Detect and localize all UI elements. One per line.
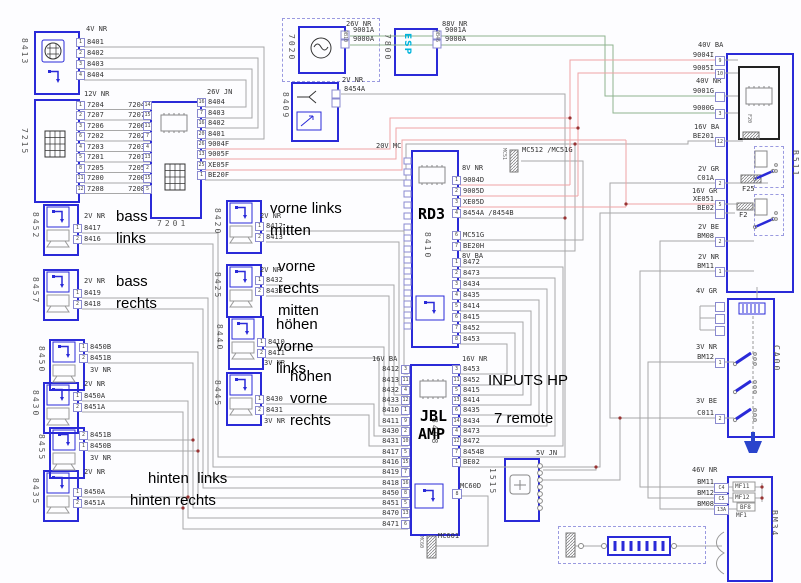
text-hinten-rechts: hinten rechts	[130, 492, 216, 509]
wire-c01a: C01A	[668, 174, 714, 182]
ref-8455: 8455	[37, 434, 46, 461]
hdr-8457: 2V NR	[84, 277, 105, 285]
ref-8409: 8409	[281, 92, 290, 119]
pin-bm34-c4: C4	[714, 483, 729, 493]
text-bass-rechts-2: rechts	[116, 295, 157, 312]
wire-9001g: 9001G	[668, 87, 714, 95]
hdr-jbl-left: 16V BA	[372, 355, 397, 363]
hdr-8435: 2V NR	[84, 468, 105, 476]
label-mc51: MC51	[501, 148, 507, 160]
text-hoehen-vorne-links-1: höhen	[276, 316, 318, 333]
wire-mc60d: MC60D	[460, 482, 481, 490]
hdr-b511-2nr: 2V NR	[698, 253, 719, 261]
label-esp: ESP	[402, 33, 412, 55]
pin-bm34-c5: C5	[714, 494, 729, 504]
ref-7201: 7201	[157, 219, 188, 228]
hdr-8450: 3V NR	[90, 366, 111, 374]
bm34-mf12: MF12	[735, 494, 749, 502]
text-bass-links-2: links	[116, 230, 146, 247]
pin-jbl-mc60d: 8	[452, 489, 462, 499]
wire-bm08: BM08	[668, 232, 714, 240]
pin-ca00-2	[715, 314, 725, 324]
hdr-8445: 3V NR	[264, 417, 285, 425]
wire-9005i: 9005I	[668, 64, 714, 72]
ref-8450: 8450	[37, 346, 46, 373]
pin-9001g	[715, 92, 725, 102]
wire-be02: BE02	[668, 204, 714, 212]
hdr-jbl-right: 16V NR	[462, 355, 487, 363]
pin-ca00-3	[715, 326, 725, 336]
ref-b511: B511	[791, 150, 800, 177]
hdr-bm34: 46V NR	[692, 466, 717, 474]
ref-8445: 8445	[213, 380, 222, 407]
bm34-mf11: MF11	[735, 483, 749, 491]
text-hoehen-vorne-rechts-3: rechts	[290, 412, 331, 429]
ref-7800: 7800	[383, 34, 392, 61]
wiring-diagram-canvas: 18401284023840348404 1720427207372066720…	[0, 0, 801, 583]
ref-bm34: BM34	[770, 510, 779, 537]
rd3-title: RD3	[418, 206, 445, 222]
hdr-ca00-4gr: 4V GR	[696, 287, 717, 295]
pin-bm08: 2	[715, 237, 725, 247]
hdr-8452: 2V NR	[84, 212, 105, 220]
text-vorne-rechts-mitten-2: rechts	[278, 280, 319, 297]
ref-8457: 8457	[31, 277, 40, 304]
label-mc60: MC60	[418, 536, 424, 548]
hdr-7215: 12V NR	[84, 90, 109, 98]
hdr-8430: 2V NR	[84, 380, 105, 388]
hdr-7201: 26V JN	[207, 88, 232, 96]
conn-9b46: 9B46	[434, 30, 440, 42]
pin-ca00-1	[715, 302, 725, 312]
pin-be02	[715, 209, 725, 219]
pin-c01a: 2	[715, 179, 725, 189]
pin-9005i: 10	[715, 69, 725, 79]
hdr-b511-16ba: 16V BA	[694, 123, 719, 131]
wire-bm11: BM11	[668, 262, 714, 270]
hdr-7020: 26V NR	[346, 20, 371, 28]
hdr-b511-2be: 2V BE	[698, 223, 719, 231]
wire-bm12: BM12	[668, 353, 714, 361]
text-inputs-hp: INPUTS HP	[488, 372, 568, 389]
hdr-b511-2gr: 2V GR	[698, 165, 719, 173]
fuse-f25: F25	[742, 185, 755, 193]
jbl-title-2: AMP	[418, 426, 445, 442]
wire-9000g: 9000G	[668, 104, 714, 112]
ref-1515: 1515	[488, 468, 497, 495]
ref-7020: 7020	[287, 34, 296, 61]
hdr-8413: 4V NR	[86, 25, 107, 33]
text-hinten-links: hinten links	[148, 470, 227, 487]
hdr-7800: 88V NR	[442, 20, 467, 28]
wire-be201: BE201	[668, 132, 714, 140]
hdr-1515: 5V JN	[536, 449, 557, 457]
pin-9004i: 9	[715, 56, 725, 66]
hdr-rd3-block: 20V MC	[376, 142, 401, 150]
pin-bm11: 1	[715, 267, 725, 277]
pin-bm12: 1	[715, 358, 725, 368]
hdr-b511-40ba: 40V BA	[698, 41, 723, 49]
hdr-ca00-3be: 3V BE	[696, 397, 717, 405]
ref-7215: 7215	[20, 128, 29, 155]
labels-layer: 8413721572017020780084098452845784508430…	[0, 0, 801, 583]
pin-9000g: 3	[715, 109, 725, 119]
pin-bm34-13a: 13A	[714, 505, 729, 515]
wire-bm11b: BM11	[668, 478, 714, 486]
ref-8440: 8440	[215, 324, 224, 351]
label-f20: F20	[746, 114, 752, 123]
ref-8435: 8435	[31, 478, 40, 505]
ref-8452: 8452	[31, 212, 40, 239]
text-bass-rechts-1: bass	[116, 273, 148, 290]
hdr-rd3-top: 8V NR	[462, 164, 483, 172]
wire-xe051: XE051	[668, 195, 714, 203]
text-vorne-rechts-mitten-1: vorne	[278, 258, 316, 275]
ref-8420: 8420	[213, 208, 222, 235]
pin-c011: 2	[715, 414, 725, 424]
hdr-8409: 2V NR	[342, 76, 363, 84]
wire-c011: C011	[668, 409, 714, 417]
ref-8425: 8425	[213, 272, 222, 299]
wire-bm08b: BM08	[668, 500, 714, 508]
fuse-f2: F2	[739, 211, 747, 219]
text-hoehen-vorne-rechts-2: vorne	[290, 390, 328, 407]
ref-8430: 8430	[31, 390, 40, 417]
wire-9004i: 9004I	[668, 51, 714, 59]
text-vorne-links-mitten-1: vorne links	[270, 200, 342, 217]
ref-8413: 8413	[20, 38, 29, 65]
ref-rd3-sub: 8410	[423, 232, 432, 259]
wire-mc512: MC512 /MC51G	[522, 146, 573, 154]
hdr-8455: 3V NR	[90, 454, 111, 462]
hdr-rd3-bot: 8V BA	[462, 252, 483, 260]
text-hoehen-vorne-rechts-1: höhen	[290, 368, 332, 385]
wire-bm12b: BM12	[668, 489, 714, 497]
bm34-bf8: BF8	[740, 504, 751, 512]
text-7-remote: 7 remote	[494, 410, 553, 427]
jbl-title-1: JBL	[420, 408, 447, 424]
hdr-b511-16gr: 16V GR	[692, 187, 717, 195]
text-hoehen-vorne-links-2: vorne	[276, 338, 314, 355]
text-bass-links-1: bass	[116, 208, 148, 225]
wire-mc601: MC601	[438, 532, 459, 540]
pin-be201: 12	[715, 137, 725, 147]
text-vorne-links-mitten-2: mitten	[270, 222, 311, 239]
bm34-mf1: MF1	[736, 512, 747, 520]
hdr-ca00-3nr: 3V NR	[696, 343, 717, 351]
ref-ca00: CA00	[772, 345, 781, 372]
conn-9b10: 9B10	[342, 30, 348, 42]
